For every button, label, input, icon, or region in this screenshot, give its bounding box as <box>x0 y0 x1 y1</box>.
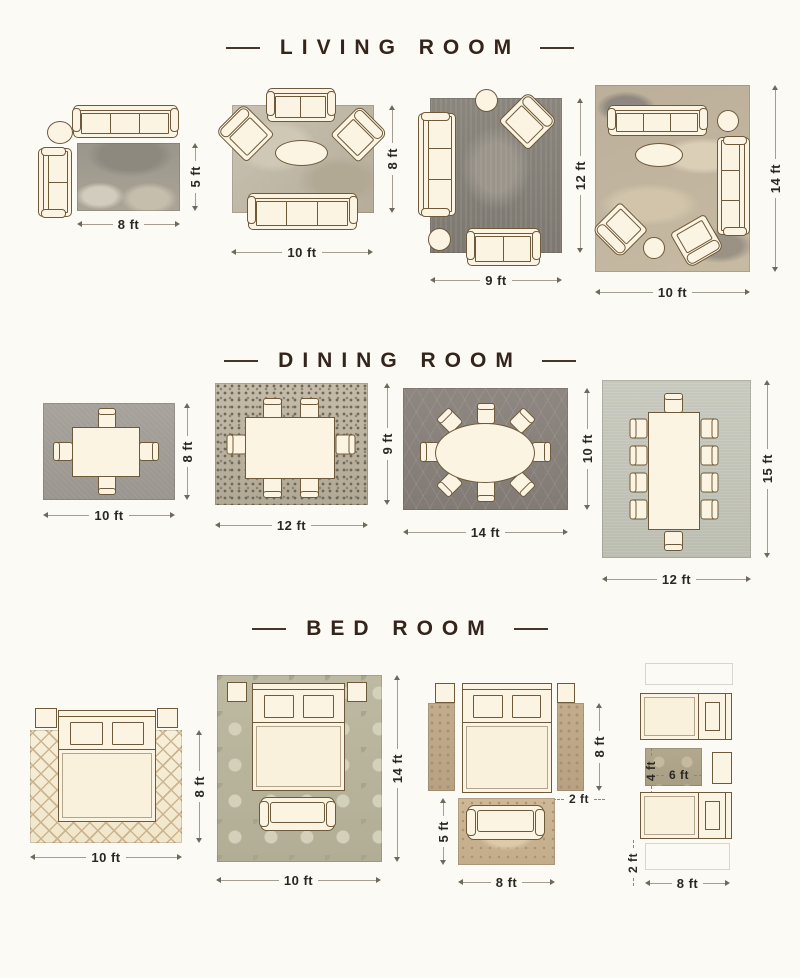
title-dash <box>542 360 576 362</box>
runner-height-dimension: 8 ft <box>592 703 606 791</box>
sofa-cushion <box>317 201 348 226</box>
pillow <box>303 695 334 718</box>
dining-chair <box>98 409 116 429</box>
twin-bed <box>640 693 732 740</box>
nightstand <box>227 682 247 702</box>
pillow <box>70 722 102 745</box>
sofa-arm <box>41 147 66 156</box>
sofa-cushion <box>110 113 140 134</box>
ottoman <box>428 228 451 251</box>
dining-chair <box>300 477 319 497</box>
sofa-arm <box>699 108 708 130</box>
runner-rug <box>557 703 584 791</box>
dining-chair <box>228 435 247 455</box>
round-side-table <box>475 89 498 112</box>
rug-width-dimension: 10 ft <box>595 285 750 299</box>
bedroom-layout-10x14: 14 ft 10 ft <box>200 665 410 900</box>
dining-chair <box>631 473 648 493</box>
dining-chair <box>98 474 116 494</box>
coffee-table-oval <box>275 140 328 166</box>
pillow <box>264 695 295 718</box>
nightstand <box>157 708 178 728</box>
bench-arm <box>466 809 476 836</box>
dining-chair <box>631 419 648 439</box>
sofa-cushion <box>670 113 698 132</box>
bench <box>467 805 544 840</box>
mattress <box>466 726 548 789</box>
sofa-arm <box>327 91 336 116</box>
dining-chair <box>631 500 648 520</box>
dining-table <box>245 417 335 479</box>
bench-rug-height-dimension: 5 ft <box>436 798 450 865</box>
pillow-zone <box>698 793 725 838</box>
bench-arm <box>259 801 269 827</box>
rug-height-dimension: 14 ft <box>390 675 404 862</box>
rug-height-dimension: 14 ft <box>768 85 782 272</box>
dining-chair <box>263 399 282 419</box>
dining-layout-12x15: 15 ft 12 ft <box>595 375 790 600</box>
pillow-zone <box>698 694 725 739</box>
mattress <box>644 697 695 736</box>
sofa-arm <box>421 208 450 217</box>
sofa-cushion <box>256 201 287 226</box>
nightstand <box>347 682 367 702</box>
sofa-arm <box>41 209 66 218</box>
headboard <box>725 694 731 739</box>
sofa-cushion <box>81 113 111 134</box>
rug-width-dimension: 14 ft <box>403 525 568 539</box>
bed <box>252 683 345 791</box>
title-dash <box>514 628 548 630</box>
sofa-arm <box>723 136 747 145</box>
section-title-text: LIVING ROOM <box>280 36 520 60</box>
dining-chair <box>263 477 282 497</box>
rug-width-dimension: 8 ft <box>77 217 180 231</box>
pillow-zone <box>463 690 551 723</box>
rug-width-dimension: 10 ft <box>216 873 381 887</box>
round-side-table <box>47 121 73 144</box>
dining-chair <box>664 531 683 550</box>
sofa-cushion <box>643 113 671 132</box>
rug <box>77 143 180 211</box>
sofa-cushion <box>428 148 452 181</box>
rug-height-dimension: 8 ft <box>385 105 399 213</box>
rug-width-dimension: 12 ft <box>602 572 751 586</box>
pillow <box>473 695 502 718</box>
section-title-bed-room: BED ROOM <box>0 617 800 641</box>
sofa-cushion <box>475 236 504 262</box>
bench-arm <box>326 801 336 827</box>
loveseat <box>467 228 540 266</box>
dining-chair <box>701 419 718 439</box>
nightstand <box>35 708 57 728</box>
rug-height-dimension: 9 ft <box>380 383 394 505</box>
rug-width-dimension: 12 ft <box>215 518 368 532</box>
living-layout-8x5: 5 ft 8 ft <box>30 95 215 245</box>
dining-layout-10x8: 8 ft 10 ft <box>30 395 215 530</box>
loveseat <box>267 88 335 122</box>
nightstand <box>435 683 455 703</box>
dining-chair <box>701 473 718 493</box>
sofa-arm <box>170 108 179 132</box>
sofa-cushion <box>503 236 532 262</box>
sofa-cushion <box>721 170 740 201</box>
rug-height-dimension: 8 ft <box>180 403 194 500</box>
round-side-table <box>717 110 739 132</box>
sofa-arm <box>349 196 358 224</box>
sofa <box>248 193 357 230</box>
dining-chair <box>139 442 158 461</box>
sofa-arm <box>247 196 256 224</box>
sofa-arm <box>421 112 450 121</box>
pillow <box>705 801 720 831</box>
living-layout-10x14: 14 ft 10 ft <box>590 80 795 310</box>
sofa-arm <box>723 227 747 236</box>
title-dash <box>224 360 258 362</box>
mattress <box>62 753 152 818</box>
pillow-zone <box>59 717 155 750</box>
dining-chair <box>701 500 718 520</box>
runner-width-dimension: 2 ft <box>553 792 605 806</box>
sofa <box>418 113 456 216</box>
sofa-cushion <box>139 113 169 134</box>
bench <box>260 797 335 831</box>
sofa <box>717 137 750 235</box>
ottoman <box>643 237 665 259</box>
sofa-cushion <box>300 96 326 118</box>
living-layout-9x12: 12 ft 9 ft <box>415 85 595 280</box>
bedroom-layout-10x8: 8 ft 10 ft <box>20 695 215 880</box>
dining-chair <box>664 394 683 413</box>
sofa-cushion <box>275 96 301 118</box>
dining-chair <box>477 481 495 501</box>
nightstand <box>712 752 732 784</box>
bed <box>462 683 552 793</box>
rug-width-dimension: 9 ft <box>430 273 562 287</box>
pillow <box>705 702 720 732</box>
sofa-arm <box>72 108 81 132</box>
runner-rug-width-dimension: 8 ft <box>645 876 730 890</box>
chaise-sofa <box>38 148 72 217</box>
sofa <box>608 105 707 136</box>
sofa-cushion <box>286 201 317 226</box>
bedroom-layout-runners: 8 ft 2 ft 5 ft 8 ft <box>420 670 620 905</box>
pillow <box>512 695 541 718</box>
bedroom-layout-twin-runners: 4 ft 6 ft 2 ft 8 ft <box>620 655 800 905</box>
rug-width-dimension: 10 ft <box>231 245 373 259</box>
dining-table-oval <box>435 423 535 483</box>
runner-width-dimension: 2 ft <box>626 840 640 873</box>
sofa <box>73 105 178 138</box>
dining-chair <box>336 435 355 455</box>
dining-layout-14x10: 10 ft 14 ft <box>400 385 595 540</box>
dining-layout-12x9: 9 ft 12 ft <box>210 380 400 540</box>
section-title-text: BED ROOM <box>306 617 494 641</box>
sofa-arm <box>607 108 616 130</box>
rug-width-dimension: 10 ft <box>30 850 182 864</box>
bed <box>58 710 156 822</box>
rug-height-dimension: 12 ft <box>573 98 587 253</box>
small-rug-width-dimension: 6 ft <box>656 768 702 782</box>
rug-width-dimension: 10 ft <box>43 508 175 522</box>
title-dash <box>252 628 286 630</box>
dining-table <box>72 427 140 477</box>
dining-chair <box>701 446 718 466</box>
bench-rug-width-dimension: 8 ft <box>458 875 555 889</box>
sofa-arm <box>466 231 475 260</box>
mattress <box>644 796 695 835</box>
section-title-living-room: LIVING ROOM <box>0 36 800 60</box>
dining-chair <box>631 446 648 466</box>
dining-chair <box>54 442 73 461</box>
runner-rug <box>645 843 730 870</box>
dining-table <box>648 412 700 530</box>
bench-arm <box>535 809 545 836</box>
coffee-table-oval <box>635 143 683 167</box>
rug-size-guide-infographic: { "page": {"background": "#fcfaf4"}, "co… <box>0 0 800 978</box>
section-title-dining-room: DINING ROOM <box>0 349 800 373</box>
pillow <box>112 722 144 745</box>
rug-height-dimension: 10 ft <box>580 388 594 510</box>
runner-rug <box>645 663 733 685</box>
dining-chair <box>477 404 495 424</box>
headboard <box>725 793 731 838</box>
sofa-cushion <box>616 113 644 132</box>
rug-height-dimension: 15 ft <box>760 380 774 558</box>
rug-height-dimension: 5 ft <box>188 143 202 211</box>
mattress <box>256 726 341 787</box>
title-dash <box>540 47 574 49</box>
dining-chair <box>300 399 319 419</box>
nightstand <box>557 683 575 703</box>
sofa-arm <box>266 91 275 116</box>
runner-rug <box>428 703 455 791</box>
section-title-text: DINING ROOM <box>278 349 522 373</box>
twin-bed <box>640 792 732 839</box>
pillow-zone <box>253 690 344 723</box>
sofa-arm <box>532 231 541 260</box>
title-dash <box>226 47 260 49</box>
living-layout-10x8: 8 ft 10 ft <box>215 85 405 265</box>
